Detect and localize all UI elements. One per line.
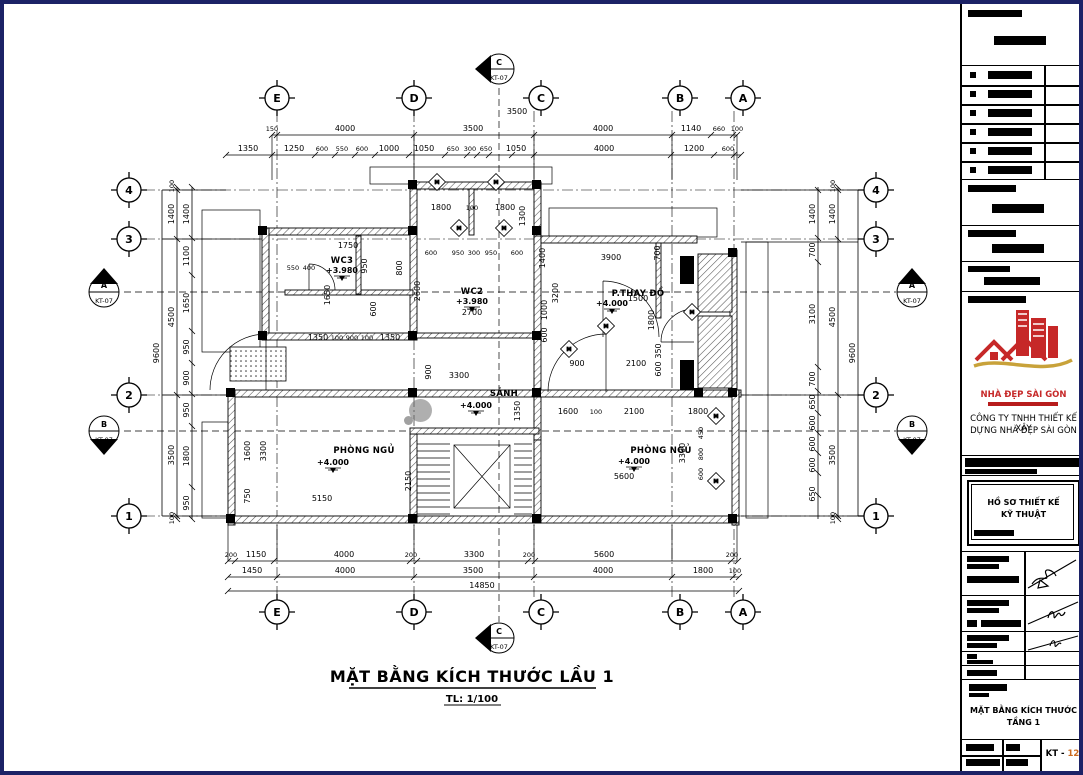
svg-text:200: 200 [405,551,417,559]
svg-text:700: 700 [808,242,817,257]
room-wc3: WC3 +3.980 [326,256,358,281]
tb-section [962,180,1083,226]
svg-text:+3.980: +3.980 [326,266,358,275]
tb-small-row [962,652,1083,666]
svg-text:KT-07: KT-07 [95,297,113,305]
svg-text:4000: 4000 [593,124,613,133]
svg-text:+4.000: +4.000 [618,457,650,466]
svg-text:450: 450 [697,427,705,439]
grid-row-4: 4 [125,184,133,197]
svg-text:100: 100 [466,204,478,212]
svg-text:SẢNH: SẢNH [490,387,518,399]
svg-text:+4.000: +4.000 [460,401,492,410]
page-scale: TL: 1/100 [446,694,498,705]
svg-text:D: D [409,92,418,105]
svg-text:M: M [502,226,507,232]
sheet-number: KT - 12 [1040,749,1083,759]
svg-text:100: 100 [829,512,837,524]
svg-text:1150: 1150 [246,550,266,559]
svg-text:1650: 1650 [182,293,191,313]
svg-text:C: C [537,92,545,105]
svg-text:700: 700 [808,371,817,386]
sheet-title-line2: TẦNG 1 [962,718,1083,727]
signature [1026,632,1082,652]
svg-text:5150: 5150 [312,494,332,503]
svg-text:4000: 4000 [335,124,355,133]
svg-text:C: C [496,58,502,67]
svg-text:A: A [101,281,108,290]
svg-text:A: A [909,281,916,290]
svg-text:B: B [676,92,684,105]
svg-text:100: 100 [168,512,176,524]
section-A-left: AKT-07 [89,268,119,307]
stairs [417,444,532,514]
company-logo [972,308,1076,388]
svg-text:400: 400 [303,264,315,272]
svg-text:1800: 1800 [688,407,708,416]
svg-text:3900: 3900 [601,253,621,262]
svg-text:1800: 1800 [647,310,656,330]
svg-text:4000: 4000 [593,566,613,575]
svg-text:600: 600 [808,415,817,430]
svg-text:2150: 2150 [404,471,413,491]
svg-text:A: A [739,92,748,105]
section-C-bottom: CKT-07 [475,623,514,653]
title-block: NHÀ ĐẸP SÀI GÒN CÔNG TY TNHH THIẾT KẾ XÂ… [960,4,1083,771]
svg-text:100: 100 [590,408,602,416]
floor-plan-svg: M M M M M M M M M WC3 +3.980 WC2 +3.980 … [4,4,960,775]
svg-text:4000: 4000 [334,550,354,559]
svg-text:+4.000: +4.000 [596,299,628,308]
svg-text:950: 950 [452,249,464,257]
grid-bubbles: E D C B A E D C B A 4 3 2 1 4 3 2 1 [111,80,894,630]
svg-text:1350: 1350 [380,333,400,342]
svg-text:M: M [714,414,719,420]
svg-text:2100: 2100 [624,407,644,416]
svg-text:M: M [690,310,695,316]
svg-text:WC2: WC2 [461,287,483,297]
svg-text:600: 600 [722,145,734,153]
svg-text:200: 200 [225,551,237,559]
drawing-title: MẶT BẰNG KÍCH THƯỚC LẦU 1 TL: 1/100 [330,665,614,705]
svg-text:KT-07: KT-07 [903,436,921,444]
svg-text:1450: 1450 [242,566,262,575]
svg-text:1650: 1650 [323,285,332,305]
svg-text:4000: 4000 [335,566,355,575]
svg-text:150: 150 [266,125,278,133]
svg-text:5600: 5600 [594,550,614,559]
svg-text:650: 650 [480,145,492,153]
svg-text:1400: 1400 [808,204,817,224]
svg-text:1200: 1200 [684,144,704,153]
svg-text:900: 900 [424,364,433,379]
svg-text:3100: 3100 [808,304,817,324]
svg-text:A: A [739,606,748,619]
svg-text:600: 600 [654,361,663,376]
tb-section [962,262,1083,292]
svg-text:950: 950 [182,402,191,417]
svg-text:200: 200 [726,551,738,559]
svg-text:2: 2 [872,389,880,402]
svg-text:600: 600 [425,249,437,257]
svg-text:2: 2 [125,389,133,402]
svg-text:700: 700 [653,245,662,260]
svg-text:1500: 1500 [628,294,648,303]
svg-text:660: 660 [713,125,725,133]
roof-outlines [202,167,768,518]
svg-text:1600: 1600 [558,407,578,416]
svg-text:100: 100 [731,125,743,133]
svg-text:5600: 5600 [614,472,634,481]
svg-text:3300: 3300 [678,443,687,463]
svg-text:1800: 1800 [693,566,713,575]
svg-text:900: 900 [182,370,191,385]
svg-text:1: 1 [125,510,133,523]
svg-text:1: 1 [872,510,880,523]
svg-text:900: 900 [346,334,358,342]
tb-signature-row [962,552,1083,596]
svg-text:1800: 1800 [431,203,451,212]
section-B-right: BKT-07 [897,416,927,455]
svg-text:M: M [494,180,499,186]
svg-text:B: B [101,420,107,429]
svg-text:350: 350 [654,343,663,358]
tb-section [962,226,1083,262]
svg-text:4500: 4500 [828,307,837,327]
svg-text:900: 900 [569,359,584,368]
svg-text:B: B [909,420,915,429]
svg-text:1400: 1400 [182,204,191,224]
svg-text:KT-07: KT-07 [490,643,508,651]
svg-text:1140: 1140 [681,124,701,133]
svg-text:B: B [676,606,684,619]
page-title: MẶT BẰNG KÍCH THƯỚC LẦU 1 [330,665,614,686]
tb-signature-row [962,632,1083,652]
svg-text:950: 950 [182,495,191,510]
svg-text:600: 600 [808,436,817,451]
svg-text:3500: 3500 [463,566,483,575]
svg-text:M: M [714,479,719,485]
svg-text:800: 800 [395,260,404,275]
svg-text:9600: 9600 [848,343,857,363]
svg-text:2100: 2100 [626,359,646,368]
svg-text:3300: 3300 [464,550,484,559]
svg-text:1800: 1800 [182,446,191,466]
svg-text:1300: 1300 [518,206,527,226]
section-A-right: AKT-07 [897,268,927,307]
svg-text:1400: 1400 [538,248,547,268]
grid-col-E: E [273,92,281,105]
section-B-left: BKT-07 [89,416,119,455]
company-line2: DỰNG NHÀ ĐẸP SÀI GÒN [962,426,1083,436]
svg-text:650: 650 [808,486,817,501]
svg-text:600: 600 [511,249,523,257]
svg-text:4000: 4000 [594,144,614,153]
svg-text:100: 100 [361,334,373,342]
svg-text:550: 550 [336,145,348,153]
tb-black-band [962,456,1083,476]
svg-text:+3.980: +3.980 [456,297,488,306]
svg-text:4: 4 [872,184,880,197]
svg-text:WC3: WC3 [331,256,353,266]
svg-text:3500: 3500 [828,445,837,465]
tb-header [962,4,1083,66]
svg-text:950: 950 [485,249,497,257]
svg-text:1750: 1750 [338,241,358,250]
svg-text:1400: 1400 [828,204,837,224]
svg-text:300: 300 [468,249,480,257]
tb-small-row [962,666,1083,680]
svg-text:E: E [273,606,281,619]
drawing-sheet: M M M M M M M M M WC3 +3.980 WC2 +3.980 … [0,0,1083,775]
svg-text:KT-07: KT-07 [903,297,921,305]
svg-text:M: M [567,347,572,353]
svg-text:1000: 1000 [379,144,399,153]
svg-text:300: 300 [464,145,476,153]
svg-text:3300: 3300 [259,441,268,461]
dossier-line2: KỸ THUẬT [962,510,1083,519]
svg-text:3500: 3500 [463,124,483,133]
door-tag-label: M [435,180,440,186]
svg-text:+4.000: +4.000 [317,458,349,467]
svg-text:600: 600 [808,457,817,472]
tb-signature-row [962,596,1083,632]
svg-text:D: D [409,606,418,619]
svg-text:2700: 2700 [462,308,482,317]
svg-text:100: 100 [829,180,837,192]
svg-text:1350: 1350 [238,144,258,153]
cursor-tail [404,416,413,425]
svg-text:3: 3 [125,233,133,246]
svg-text:2600: 2600 [413,281,422,301]
svg-text:M: M [604,324,609,330]
logo-tagline [988,402,1058,406]
svg-text:100: 100 [331,334,343,342]
svg-text:3200: 3200 [551,283,560,303]
svg-text:1350: 1350 [308,333,328,342]
planter [230,347,286,381]
svg-text:C: C [537,606,545,619]
svg-text:KT-07: KT-07 [95,436,113,444]
svg-text:KT-07: KT-07 [490,74,508,82]
svg-text:1250: 1250 [284,144,304,153]
svg-text:4500: 4500 [167,307,176,327]
svg-text:3: 3 [872,233,880,246]
logo-text: NHÀ ĐẸP SÀI GÒN [962,390,1083,400]
svg-text:9600: 9600 [152,343,161,363]
room-bedroom-left: PHÒNG NGỦ +4.000 [317,443,395,473]
sheet-title-line1: MẶT BẰNG KÍCH THƯỚC [962,706,1083,715]
svg-text:800: 800 [697,448,705,460]
svg-text:1400: 1400 [167,204,176,224]
svg-text:3300: 3300 [449,371,469,380]
section-C-top: CKT-07 [475,54,514,84]
svg-text:1350: 1350 [513,401,522,421]
svg-text:950: 950 [182,339,191,354]
svg-text:3500: 3500 [167,445,176,465]
svg-text:100: 100 [729,567,741,575]
svg-text:950: 950 [360,258,369,273]
svg-text:1800: 1800 [495,203,515,212]
svg-text:1050: 1050 [414,144,434,153]
tb-revision-table [962,66,1083,180]
svg-text:650: 650 [447,145,459,153]
tb-company: NHÀ ĐẸP SÀI GÒN CÔNG TY TNHH THIẾT KẾ XÂ… [962,292,1083,456]
signature [1026,554,1082,594]
svg-text:C: C [496,627,502,636]
tb-dossier: HỒ SƠ THIẾT KẾ KỸ THUẬT [962,476,1083,552]
dossier-line1: HỒ SƠ THIẾT KẾ [962,498,1083,507]
svg-text:600: 600 [697,468,705,480]
svg-text:1100: 1100 [182,246,191,266]
svg-text:200: 200 [523,551,535,559]
tb-footer: KT - 12 [962,740,1083,771]
tb-sheet-title: MẶT BẰNG KÍCH THƯỚC TẦNG 1 [962,680,1083,740]
svg-text:600: 600 [356,145,368,153]
svg-text:3500: 3500 [507,107,527,116]
svg-text:1000: 1000 [540,300,549,320]
svg-text:PHÒNG NGỦ: PHÒNG NGỦ [333,443,394,456]
svg-text:600: 600 [369,301,378,316]
svg-text:M: M [457,226,462,232]
svg-text:100: 100 [168,180,176,192]
svg-text:550: 550 [287,264,299,272]
svg-text:14850: 14850 [469,581,494,590]
svg-text:1600: 1600 [243,441,252,461]
svg-text:600: 600 [316,145,328,153]
svg-text:600: 600 [540,327,549,342]
signature [1026,596,1082,628]
svg-text:750: 750 [243,488,252,503]
svg-text:650: 650 [808,394,817,409]
svg-text:1050: 1050 [506,144,526,153]
